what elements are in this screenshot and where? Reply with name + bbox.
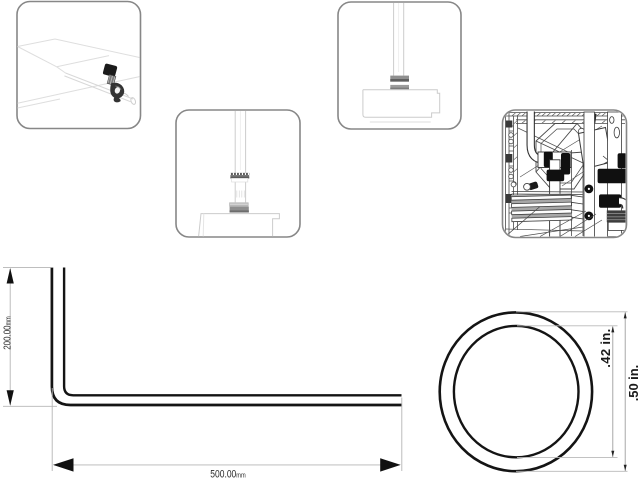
svg-text:.42 in.: .42 in. [598, 329, 613, 368]
svg-text:500.00mm: 500.00mm [210, 469, 246, 478]
svg-text:.50 in.: .50 in. [626, 365, 640, 402]
